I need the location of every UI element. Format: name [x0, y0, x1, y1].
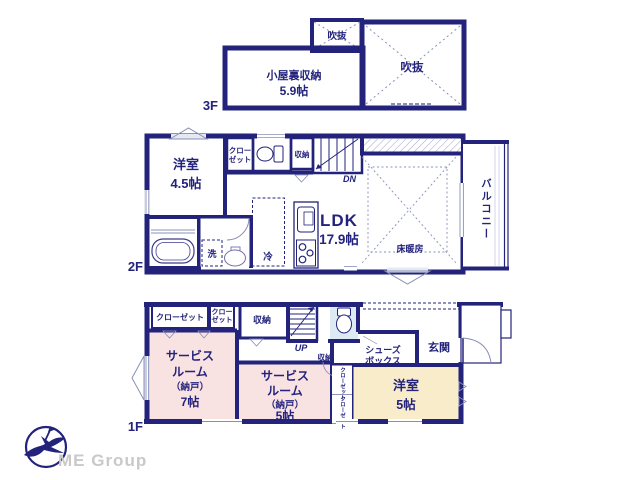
svg-text:ルーム: ルーム — [172, 365, 208, 379]
washer-label: 洗 — [207, 248, 216, 259]
stairs-down-label: DN — [343, 174, 356, 184]
shoes-box-label-1: シューズ — [365, 344, 401, 355]
svg-text:5帖: 5帖 — [276, 408, 295, 423]
floor-1f: クローゼット クロー ゼット 収納 UP 収納 — [128, 302, 511, 434]
stairs-up-label: UP — [295, 343, 308, 353]
western-room-2f-label: 洋室 — [173, 157, 199, 172]
room-western-1f — [352, 365, 461, 424]
attic-size-label: 5.9帖 — [280, 83, 309, 98]
floor-plan-drawing: 吹抜 吹抜 小屋裏収納 5.9帖 3F クロー ゼット — [0, 0, 640, 480]
balcony-label: バルコニー — [480, 178, 492, 241]
toilet-icon-2f — [257, 146, 283, 162]
void-small-label: 吹抜 — [327, 30, 347, 42]
svg-text:（納戸）: （納戸） — [171, 381, 209, 393]
western-room-1f-label: 洋室 — [393, 378, 419, 393]
storage-1f-top-label: 収納 — [253, 314, 271, 325]
svg-text:ルーム: ルーム — [267, 384, 303, 398]
closet-1f-small-label-1: クロー — [212, 307, 233, 316]
fridge-label: 冷 — [263, 251, 273, 263]
toilet-icon-1f — [337, 308, 352, 333]
svg-text:サービス: サービス — [261, 368, 309, 383]
closet-1f-wide-label: クローゼット — [156, 312, 204, 322]
floor-heating-label: 床暖房 — [396, 243, 423, 254]
floor-3f-label: 3F — [203, 98, 218, 113]
attic-name-label: 小屋裏収納 — [266, 68, 322, 82]
floor-plan-page: 吹抜 吹抜 小屋裏収納 5.9帖 3F クロー ゼット — [0, 0, 640, 480]
washroom-2f: 洗 — [201, 218, 250, 267]
floor-2f-label: 2F — [128, 259, 143, 274]
porch-step — [501, 310, 511, 338]
closet-vertical-2-label: クローゼット — [339, 395, 346, 430]
storage-under-stairs-label: 収納 — [318, 352, 333, 362]
bay-window-gap — [171, 134, 206, 139]
svg-text:サービス: サービス — [166, 348, 214, 363]
floor-1f-label: 1F — [128, 419, 143, 434]
logo-text: ME Group — [58, 451, 147, 470]
bay-window-gap — [387, 268, 428, 273]
kitchen-counter — [294, 202, 318, 268]
western-room-2f-size: 4.5帖 — [170, 176, 201, 191]
void-large-label: 吹抜 — [401, 60, 424, 74]
ldk-label: LDK — [320, 211, 358, 230]
shoes-box-label-2: ボックス — [365, 355, 401, 366]
closet-2f-label-1: クロー — [229, 145, 252, 155]
balcony: バルコニー — [459, 140, 509, 270]
sink-icon — [225, 250, 246, 266]
closet-2f-label-2: ゼット — [229, 154, 252, 164]
entrance-label: 玄関 — [428, 340, 450, 354]
closet-1f-small-label-2: ゼット — [212, 315, 233, 324]
svg-text:7帖: 7帖 — [181, 394, 200, 409]
storage-2f-label: 収納 — [295, 149, 310, 159]
kitchen-sink-icon — [298, 207, 315, 232]
void-overhang-hatch — [362, 139, 461, 152]
ldk-size-label: 17.9帖 — [319, 231, 359, 247]
western-room-1f-size: 5帖 — [396, 397, 416, 412]
